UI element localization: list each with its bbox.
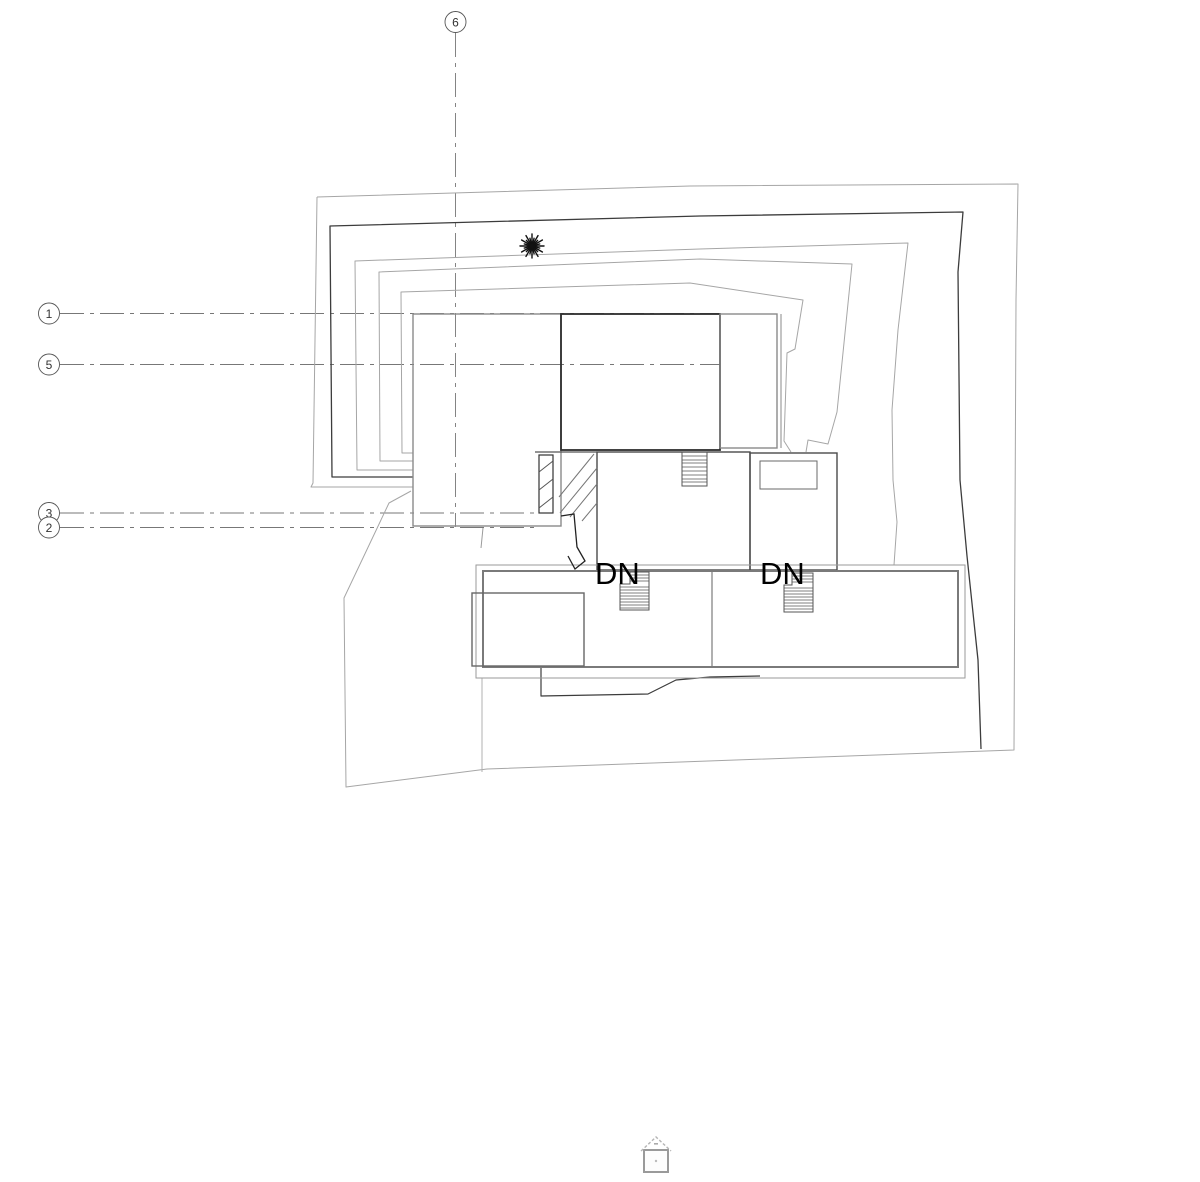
skylight-rect [760, 461, 817, 489]
terrace-left-room [472, 593, 584, 666]
drawing-canvas: 6 1 5 3 2 [0, 0, 1200, 1182]
tree-icon-center [530, 244, 534, 248]
property-boundary-line [317, 184, 1018, 787]
ramp-details [535, 452, 597, 569]
grid-bubble-6-label: 6 [452, 16, 459, 30]
dn-label-right: DN [760, 556, 805, 591]
ramp-diagonal-hatch [559, 454, 597, 521]
retaining-wall-path [541, 666, 760, 696]
grid-bubbles: 6 1 5 3 2 [39, 12, 467, 539]
roof-block-upper-dark [561, 314, 720, 450]
grid-bubble-5-label: 5 [46, 358, 53, 372]
house-marker-icon [641, 1137, 671, 1172]
site-plan-svg: 6 1 5 3 2 [0, 0, 1200, 1182]
grid-bubble-1: 1 [39, 303, 60, 324]
building-roof-plan [413, 314, 965, 678]
grid-bubble-6: 6 [445, 12, 466, 33]
terrace-outer [476, 565, 965, 678]
terrain-contours [311, 184, 1018, 787]
dn-labels: DN DN [595, 556, 805, 591]
property-boundary-left-line [311, 197, 413, 487]
drain-channel-path [561, 514, 585, 569]
grid-bubble-5: 5 [39, 354, 60, 375]
house-marker-dot [655, 1160, 657, 1162]
grid-bubble-1-label: 1 [46, 307, 53, 321]
dn-label-left: DN [595, 556, 640, 591]
contour-line-4 [401, 283, 803, 453]
stair-icon-top [682, 452, 707, 486]
contour-line-dark [330, 212, 981, 749]
terrace-inner [483, 571, 958, 667]
grid-bubble-2-label: 2 [46, 521, 53, 535]
terrain-stub-line [481, 528, 483, 548]
roof-block-upper-right [720, 314, 777, 448]
ramp-strip-hatch [539, 461, 553, 508]
grid-lines [60, 33, 720, 528]
house-marker-ridge-mark [654, 1143, 658, 1145]
roof-block-middle [597, 452, 750, 570]
roof-block-right [750, 453, 837, 570]
grid-bubble-2: 2 [39, 517, 60, 538]
